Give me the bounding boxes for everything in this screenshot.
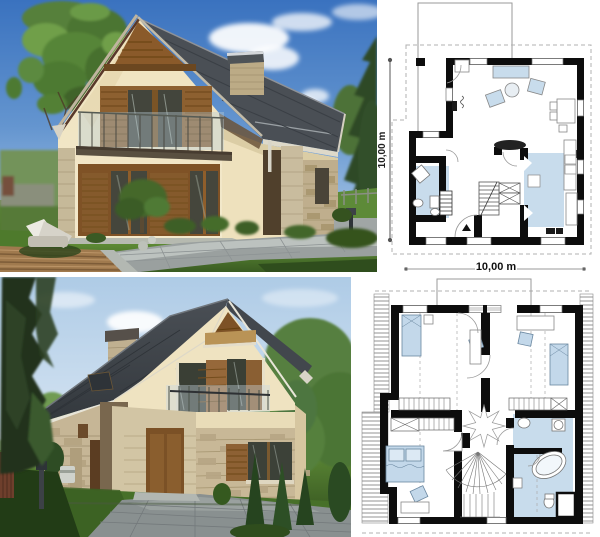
svg-text:10,00 m: 10,00 m (377, 132, 388, 169)
